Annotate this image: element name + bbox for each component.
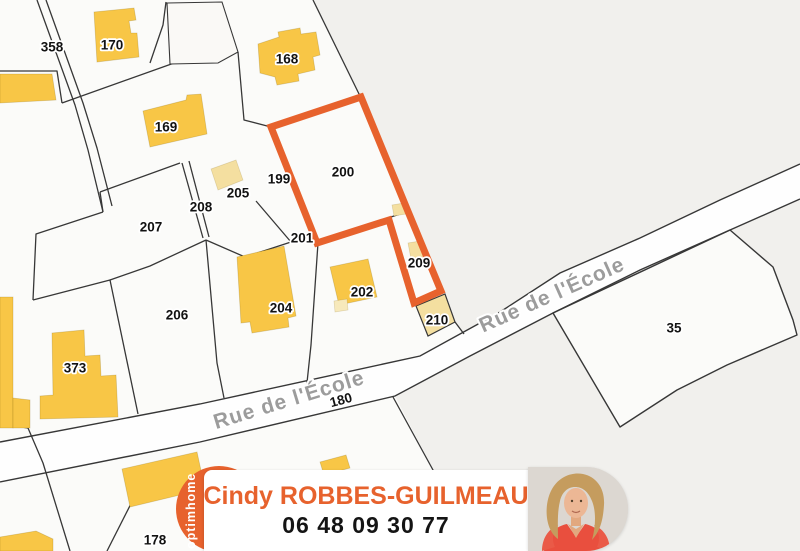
parcel-label-35: 35 bbox=[666, 321, 682, 336]
building-left-strip bbox=[0, 297, 13, 428]
parcel-label-170: 170 bbox=[101, 38, 124, 53]
cadastre-map[interactable]: 3581701681692052082071992002012022092102… bbox=[0, 0, 800, 551]
parcel-label-168: 168 bbox=[276, 52, 299, 67]
cadastre-map-page: 3581701681692052082071992002012022092102… bbox=[0, 0, 800, 551]
parcel-label-373: 373 bbox=[64, 361, 87, 376]
parcel-label-207: 207 bbox=[140, 220, 163, 235]
parcel-label-199: 199 bbox=[268, 172, 291, 187]
parcel-label-210: 210 bbox=[426, 313, 449, 328]
building-left-strip2 bbox=[13, 398, 30, 428]
parcel-label-209: 209 bbox=[408, 256, 431, 271]
building-left-top bbox=[0, 74, 56, 103]
parcel-label-178: 178 bbox=[144, 533, 167, 548]
parcel-label-169: 169 bbox=[155, 120, 178, 135]
parcel-label-208: 208 bbox=[190, 200, 213, 215]
building-202-annex bbox=[334, 299, 348, 312]
parcel-label-206: 206 bbox=[166, 308, 189, 323]
parcel-label-205: 205 bbox=[227, 186, 250, 201]
parcel-label-202: 202 bbox=[351, 285, 374, 300]
parcel-label-200: 200 bbox=[332, 165, 355, 180]
building-170 bbox=[94, 8, 139, 62]
parcel-label-204: 204 bbox=[270, 301, 293, 316]
parcel-label-358: 358 bbox=[41, 40, 64, 55]
parcel-label-201: 201 bbox=[291, 231, 314, 246]
